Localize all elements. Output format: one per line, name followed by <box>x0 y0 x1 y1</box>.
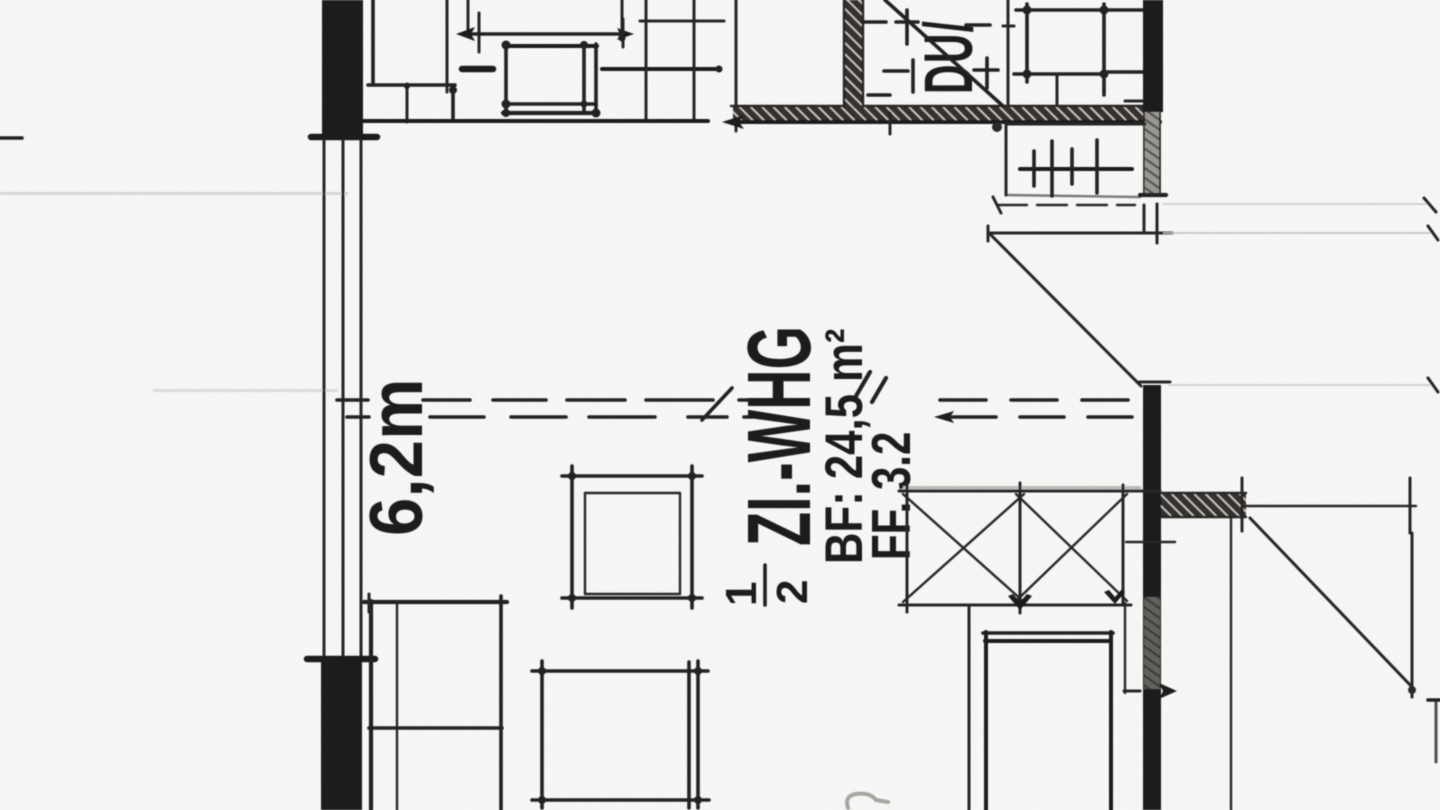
svg-text:1: 1 <box>717 582 766 606</box>
svg-text:FF. 3.2: FF. 3.2 <box>862 432 923 560</box>
svg-text:ZI.-WHG: ZI.-WHG <box>728 326 829 546</box>
svg-text:2: 2 <box>768 580 817 604</box>
svg-text:6,2m: 6,2m <box>354 378 439 536</box>
